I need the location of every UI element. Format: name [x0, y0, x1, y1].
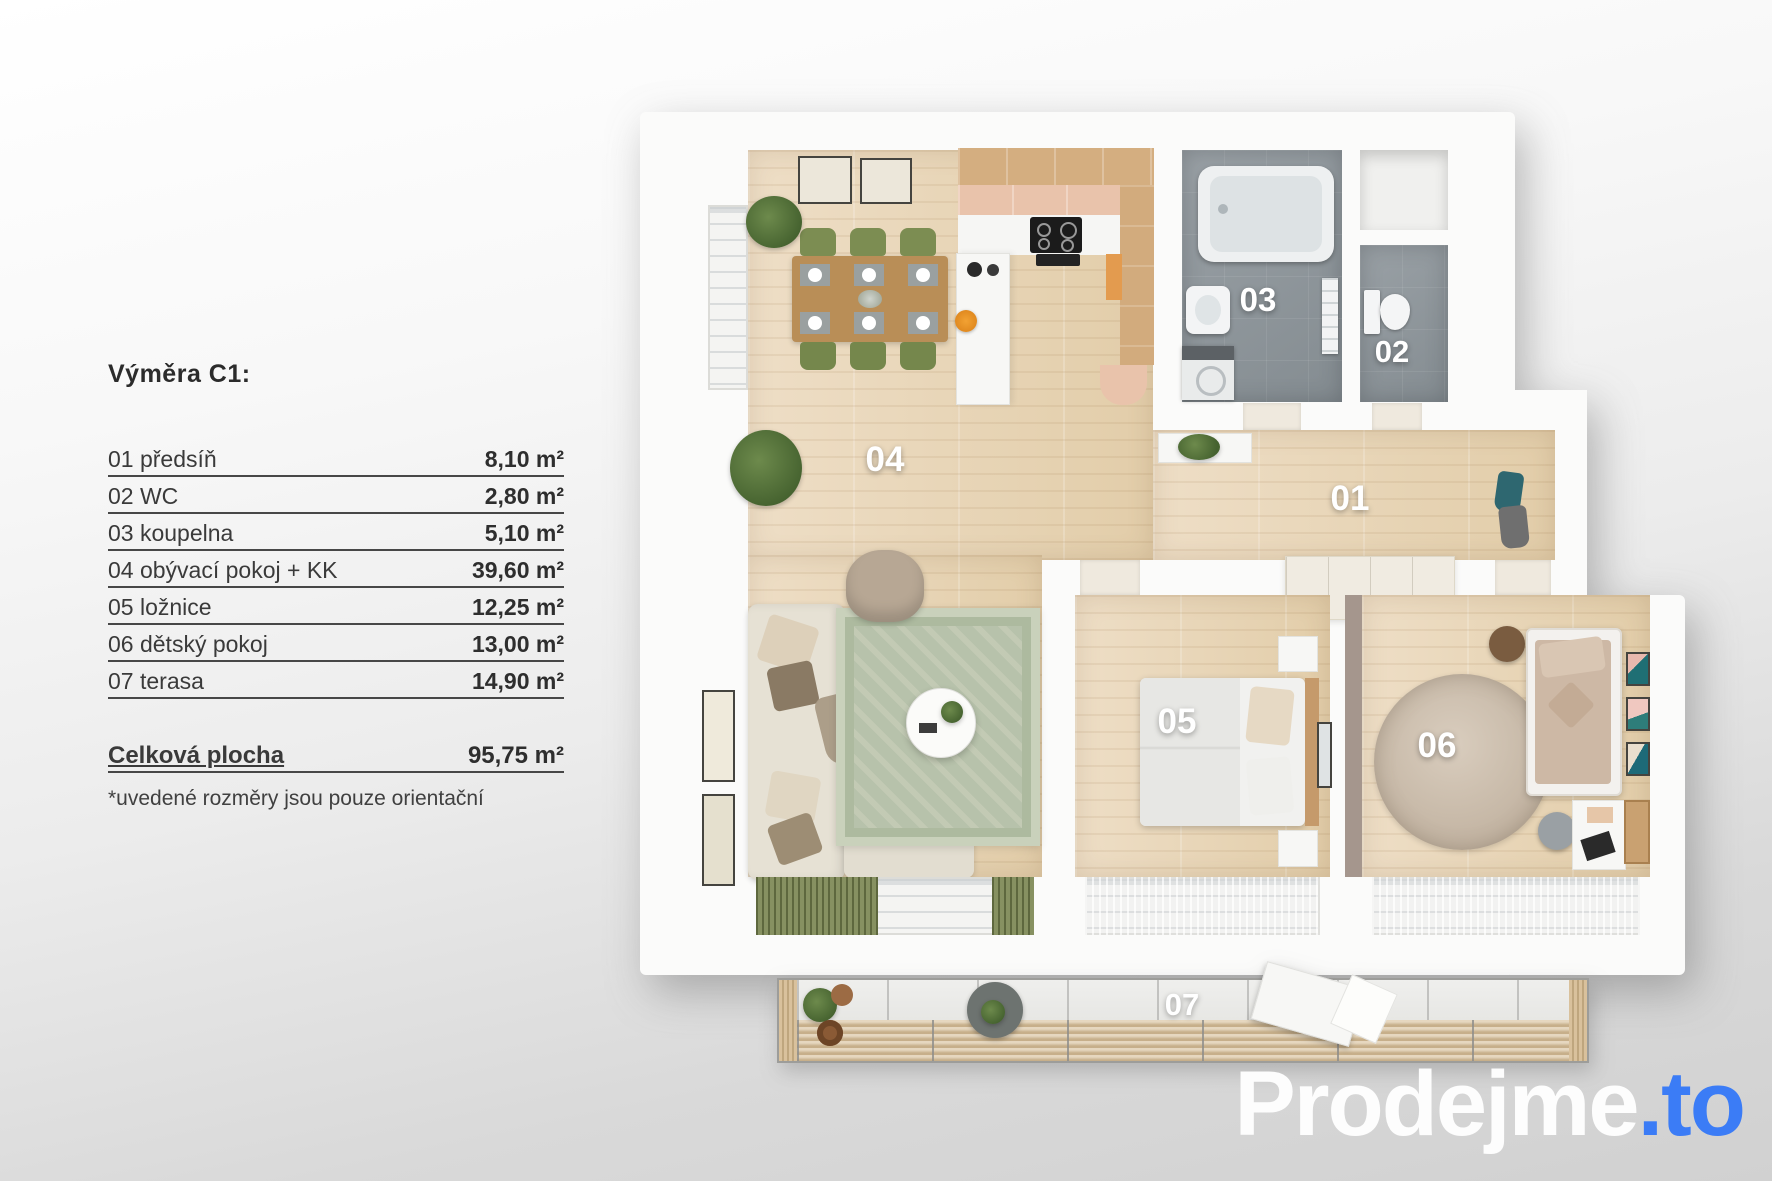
bathtub-basin — [1210, 176, 1322, 252]
wall-art-frame — [702, 794, 735, 886]
dining-chair — [850, 342, 886, 370]
desk — [1572, 800, 1626, 870]
double-bed — [1140, 678, 1305, 826]
plan-label-04: 04 — [866, 440, 905, 480]
plan-label-07: 07 — [1165, 987, 1199, 1023]
wc-door-threshold — [1372, 403, 1422, 430]
wall-art-frame — [1317, 722, 1332, 788]
wall-art-frame — [860, 158, 912, 204]
shelf-plant — [1178, 434, 1220, 460]
plate-icon — [916, 268, 930, 282]
towel-radiator — [1322, 278, 1338, 354]
dining-chair — [800, 342, 836, 370]
laptop-icon — [1580, 831, 1615, 861]
dining-table — [792, 256, 948, 342]
plan-label-03: 03 — [1240, 281, 1277, 319]
wall-art-frame — [702, 690, 735, 782]
round-rug — [1374, 674, 1550, 850]
bathtub — [1198, 166, 1334, 262]
kids-room-door-threshold — [1495, 560, 1551, 595]
terrace-slat-wall-left — [779, 980, 797, 1061]
placemat — [908, 312, 938, 334]
terrace-table — [967, 982, 1023, 1038]
dining-chair — [900, 342, 936, 370]
kitchen-upper-cabinets — [958, 148, 1154, 185]
green-curtain — [992, 877, 1034, 935]
plate-icon — [862, 316, 876, 330]
placemat — [908, 264, 938, 286]
burner-icon — [1037, 223, 1051, 237]
sofa-pillow — [766, 660, 820, 713]
plate-icon — [808, 268, 822, 282]
brand-tld: .to — [1638, 1053, 1744, 1155]
duvet — [1140, 678, 1240, 826]
plant-pot — [831, 984, 853, 1006]
sink-basin — [1195, 295, 1221, 325]
placemat — [854, 264, 884, 286]
placemat — [800, 312, 830, 334]
kitchen-counter-pink — [958, 185, 1121, 215]
sofa-pillow — [766, 811, 824, 866]
kids-bed — [1526, 628, 1622, 796]
table-centerpiece — [858, 290, 882, 308]
plan-label-05: 05 — [1158, 702, 1197, 742]
dining-chair — [900, 228, 936, 256]
washer-door-icon — [1196, 366, 1226, 396]
bedroom-door-threshold — [1080, 560, 1140, 595]
plan-label-01: 01 — [1331, 479, 1370, 519]
burner-icon — [1038, 238, 1050, 250]
living-room-side-window — [708, 205, 748, 390]
bed-pillow — [1245, 686, 1295, 746]
wall-art-frame — [1626, 697, 1650, 731]
installation-shaft — [1360, 150, 1448, 230]
bathroom-sink — [1186, 286, 1230, 334]
sheer-curtain — [1372, 877, 1640, 935]
wall-art-frame — [798, 156, 852, 204]
bathroom-door-threshold — [1243, 403, 1301, 430]
washer-panel — [1182, 346, 1234, 360]
side-table — [1489, 626, 1525, 662]
kids-room-accent-wall — [1345, 595, 1362, 877]
pinboard — [1624, 800, 1650, 864]
potted-plant — [746, 196, 802, 248]
brand-logo: Prodejme.to — [1234, 1052, 1744, 1157]
coffee-table — [906, 688, 976, 758]
green-curtain — [756, 877, 878, 935]
kitchen-cabinet-end — [1100, 365, 1147, 405]
nightstand — [1278, 830, 1318, 867]
hanging-coat — [1498, 505, 1530, 550]
cooktop — [1030, 217, 1082, 253]
wall-art-frame — [1626, 652, 1650, 686]
plate-icon — [808, 316, 822, 330]
placemat — [800, 264, 830, 286]
terrace-table-plant — [981, 1000, 1005, 1024]
plant-pot — [817, 1020, 843, 1046]
desk-chair — [1538, 812, 1576, 850]
palm-plant — [730, 430, 802, 506]
plate-icon — [916, 316, 930, 330]
plan-label-06: 06 — [1418, 726, 1457, 766]
dining-chair — [850, 228, 886, 256]
oven — [1036, 254, 1080, 266]
terrace: 07 — [777, 978, 1589, 1063]
wall-art-frame — [1626, 742, 1650, 776]
placemat — [854, 312, 884, 334]
bed-pillow — [1246, 756, 1295, 816]
sheer-curtain — [1085, 877, 1320, 935]
fruit-bowl — [955, 310, 977, 332]
kitchen-tall-cabinet — [1120, 185, 1154, 365]
burner-icon — [1060, 222, 1077, 239]
washing-machine — [1182, 346, 1234, 400]
nightstand — [1278, 636, 1318, 672]
dining-chair — [800, 228, 836, 256]
armchair — [846, 550, 924, 622]
brand-name: Prodejme — [1234, 1053, 1637, 1155]
table-plant — [941, 701, 963, 723]
book-icon — [919, 723, 937, 733]
bathtub-drain-icon — [1218, 204, 1228, 214]
terrace-slat-wall-right — [1569, 980, 1587, 1061]
plate-icon — [862, 268, 876, 282]
sofa-pillow — [764, 770, 821, 824]
plan-label-02: 02 — [1375, 334, 1409, 370]
toilet-tank — [1364, 290, 1380, 334]
coffee-machine-icon — [987, 264, 999, 276]
burner-icon — [1061, 239, 1074, 252]
desk-lamp-base — [1587, 807, 1613, 823]
kettle-icon — [967, 262, 982, 277]
kitchen-open-shelf — [1106, 254, 1122, 300]
